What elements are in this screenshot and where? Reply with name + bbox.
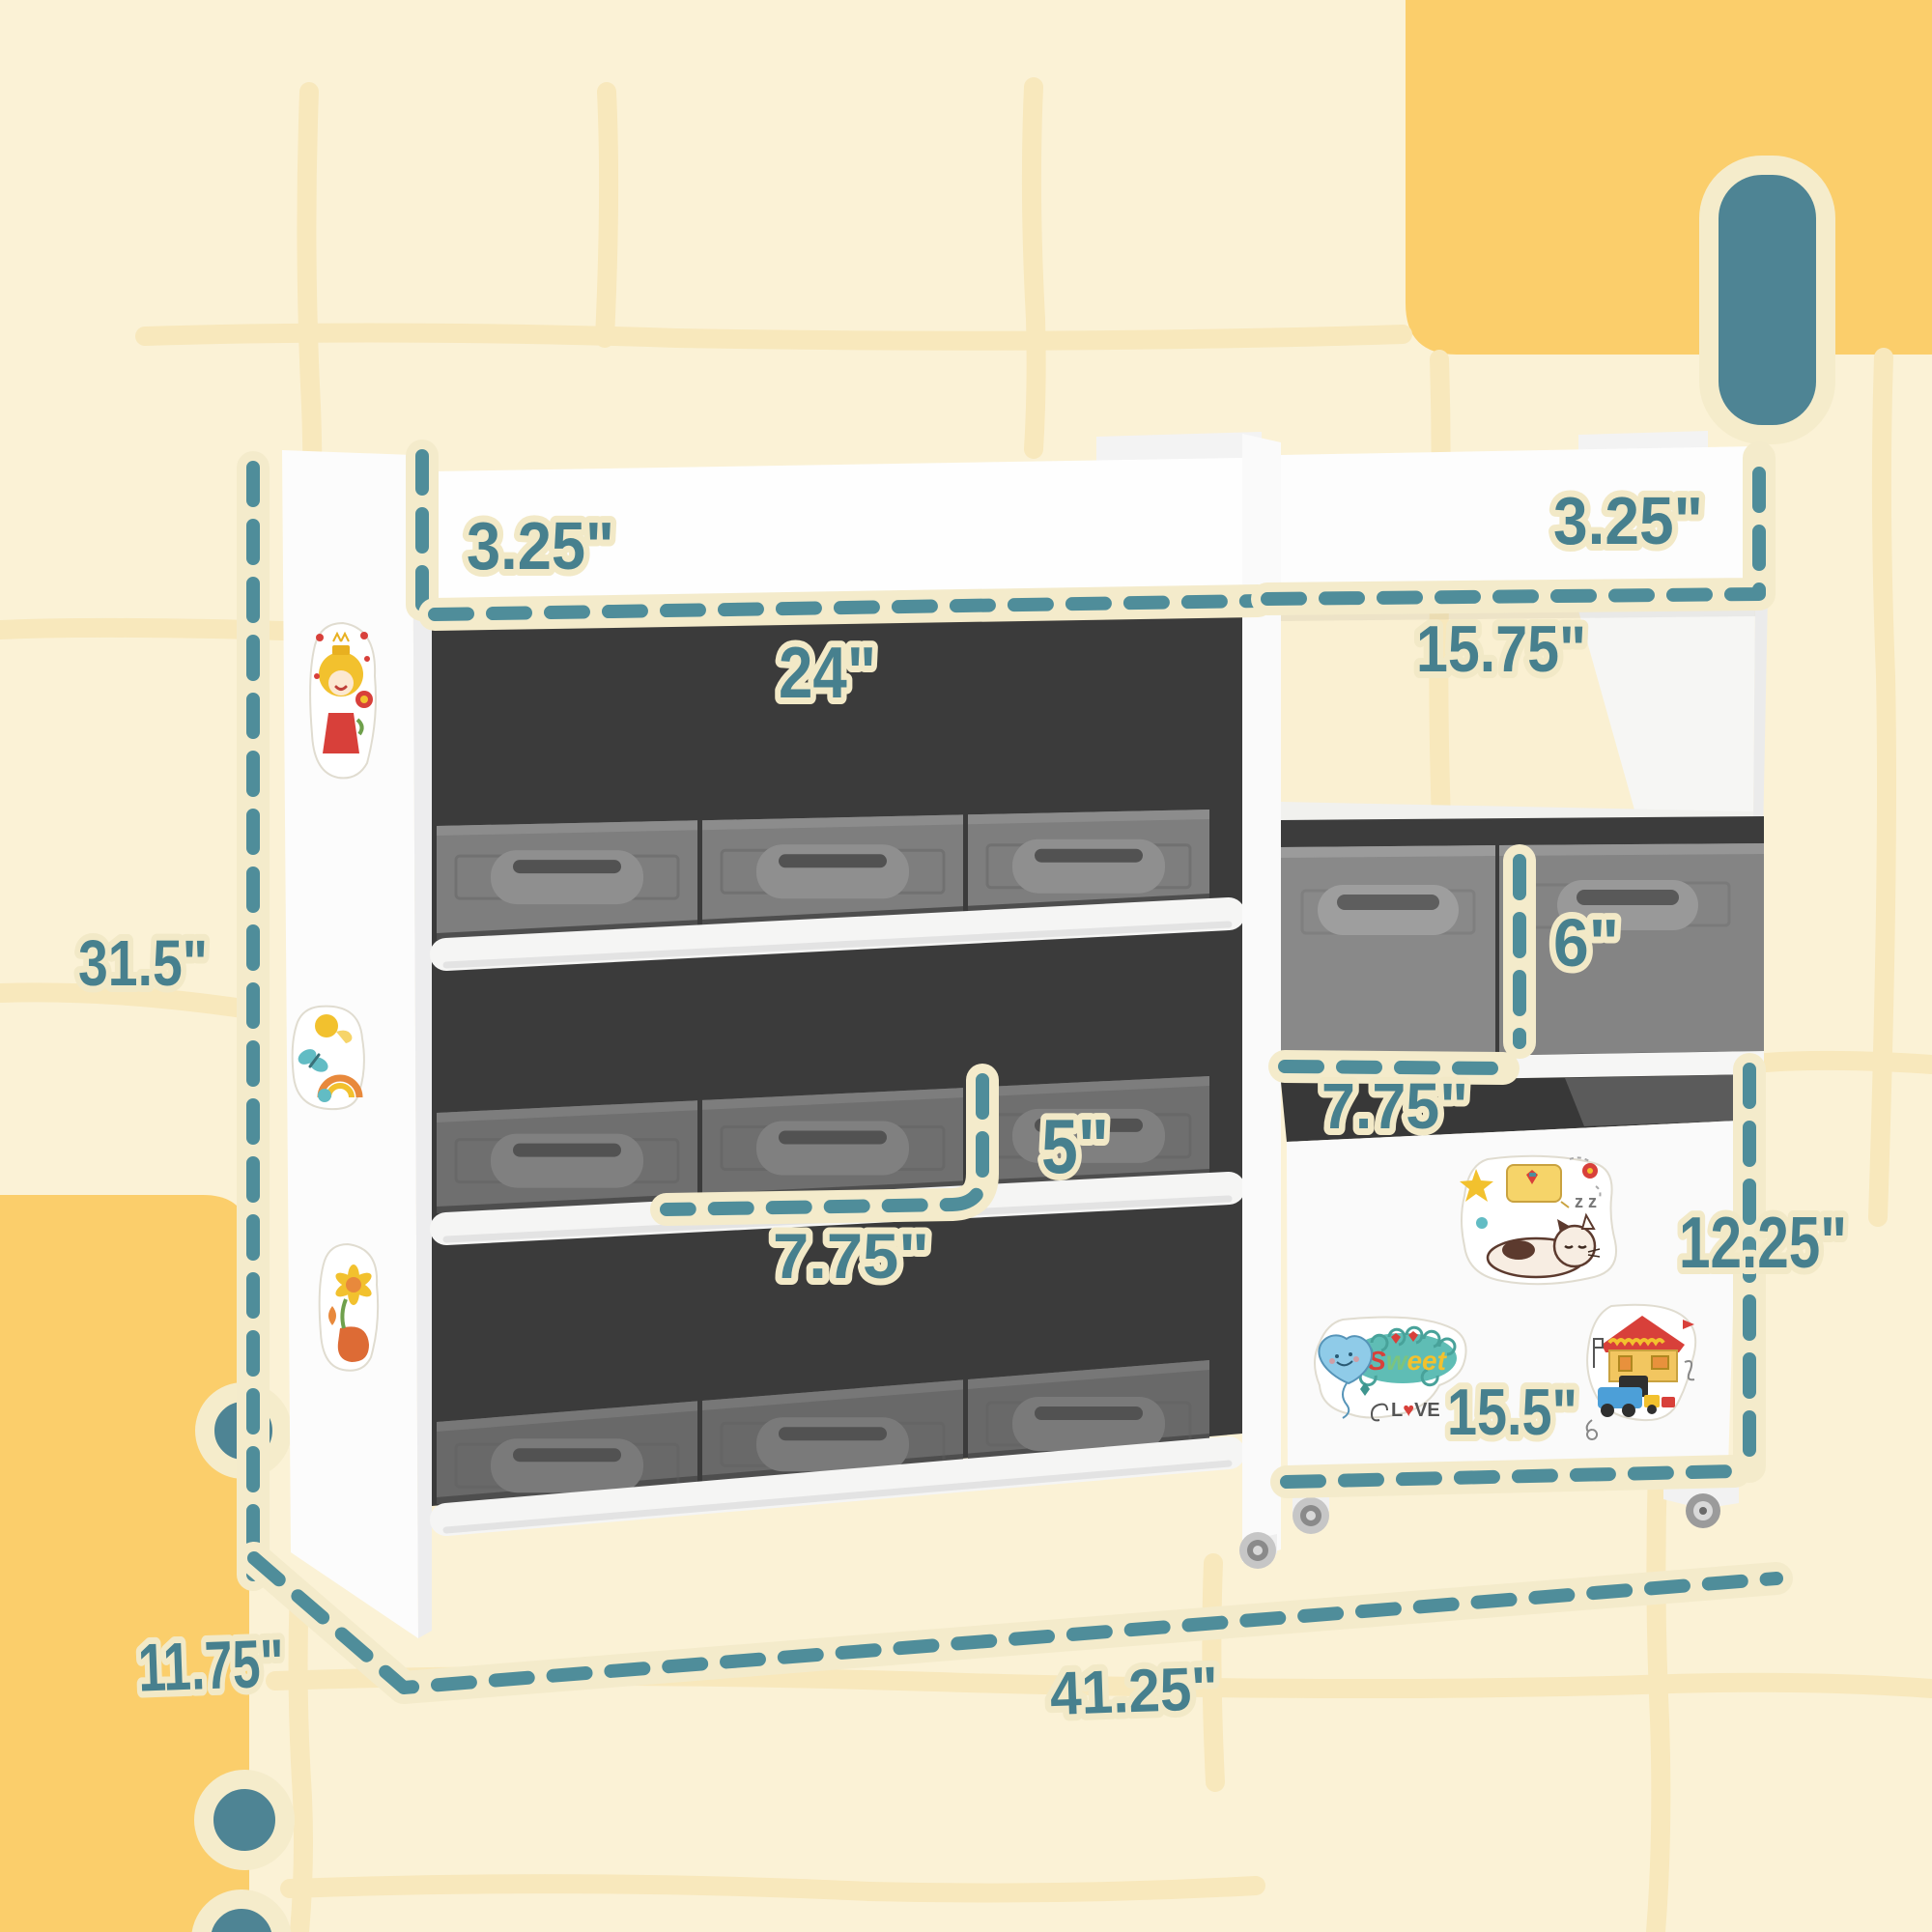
svg-text:z z: z z — [1575, 1192, 1597, 1211]
svg-text:24": 24" — [779, 632, 876, 713]
svg-text:11.75": 11.75" — [137, 1625, 286, 1705]
svg-text:6": 6" — [1553, 905, 1619, 980]
svg-text:7.75": 7.75" — [773, 1220, 929, 1292]
svg-text:L♥VE: L♥VE — [1391, 1400, 1440, 1421]
svg-text:3.25": 3.25" — [467, 508, 614, 583]
svg-text:3.25": 3.25" — [1553, 483, 1703, 558]
svg-text:15.75": 15.75" — [1416, 612, 1586, 686]
svg-text:12.25": 12.25" — [1679, 1202, 1847, 1283]
svg-text:7.75": 7.75" — [1321, 1070, 1468, 1143]
svg-text:15.5": 15.5" — [1447, 1376, 1577, 1449]
svg-text:41.25": 41.25" — [1049, 1655, 1219, 1728]
svg-text:Sweet: Sweet — [1368, 1346, 1448, 1376]
svg-text:5": 5" — [1041, 1103, 1109, 1189]
svg-text:31.5": 31.5" — [78, 927, 208, 1000]
